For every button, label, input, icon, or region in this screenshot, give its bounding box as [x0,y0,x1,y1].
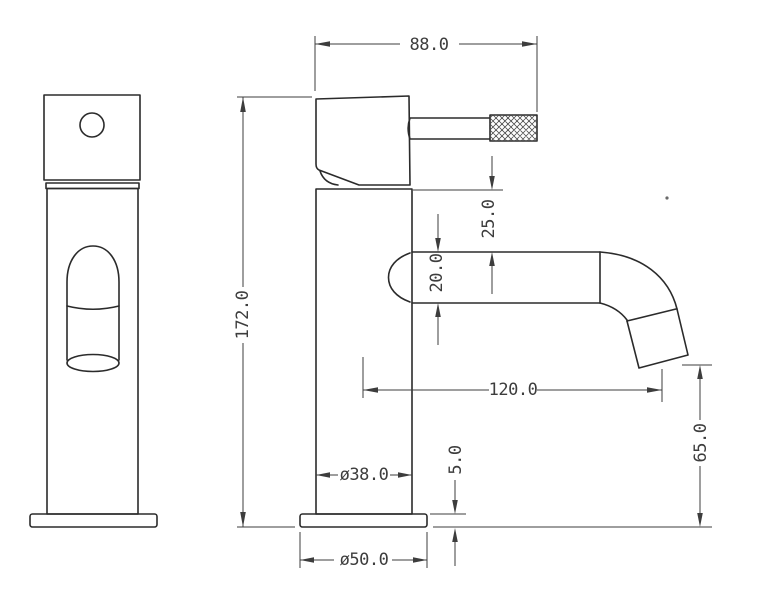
side-lever-arm [408,118,490,139]
arrow-5-top [452,500,458,514]
technical-drawing-canvas: 88.0 172.0 25.0 20.0 120.0 65.0 5.0 ø38.… [0,0,763,600]
arrow-5-bottom [452,528,458,542]
faucet-drawing-svg: 88.0 172.0 25.0 20.0 120.0 65.0 5.0 ø38.… [0,0,763,600]
front-handle-hole [80,113,104,137]
dim-base-diameter: ø50.0 [340,550,389,570]
stray-mark [665,196,668,199]
arrow-20-bottom [435,303,441,317]
side-spout-tip [627,309,688,368]
front-spout-outlet [67,355,119,372]
side-spout-bend [600,252,677,320]
front-base-plate [30,514,157,527]
dim-spout-tube: 20.0 [427,253,447,292]
extension-lines [237,36,712,568]
dim-outlet-height: 65.0 [691,423,711,462]
arrow-120-right [647,387,662,393]
arrow-88-right [522,41,537,47]
arrow-25-bottom [489,252,495,266]
arrow-65-bottom [697,513,703,527]
arrow-38-right [398,472,412,478]
side-view [300,96,688,527]
side-handle-body [316,96,410,185]
dimension-lines [243,44,700,566]
arrow-50-left [300,557,314,563]
side-spout-root-arc [389,253,411,302]
arrow-65-top [697,365,703,379]
dimension-arrowheads [240,41,703,563]
dim-handle-to-spout: 25.0 [479,199,499,238]
arrow-25-top [489,176,495,190]
side-spout-tip-joint [627,309,676,321]
front-joint-ring [46,183,139,189]
arrow-50-right [413,557,427,563]
arrow-88-left [315,41,330,47]
front-column [47,189,138,515]
arrow-172-bottom [240,512,246,527]
dim-base-thickness: 5.0 [446,445,466,474]
front-view [30,95,157,527]
dim-spout-reach: 120.0 [489,380,538,400]
side-base-plate [300,514,427,527]
front-spout-bend-edge [67,306,119,309]
dim-overall-width: 88.0 [410,35,449,55]
arrow-20-top [435,238,441,252]
arrow-172-top [240,97,246,112]
front-spout-outline [67,246,119,360]
dim-body-diameter: ø38.0 [340,465,389,485]
arrow-38-left [316,472,330,478]
arrow-120-left [363,387,378,393]
dim-overall-height: 172.0 [233,290,253,339]
